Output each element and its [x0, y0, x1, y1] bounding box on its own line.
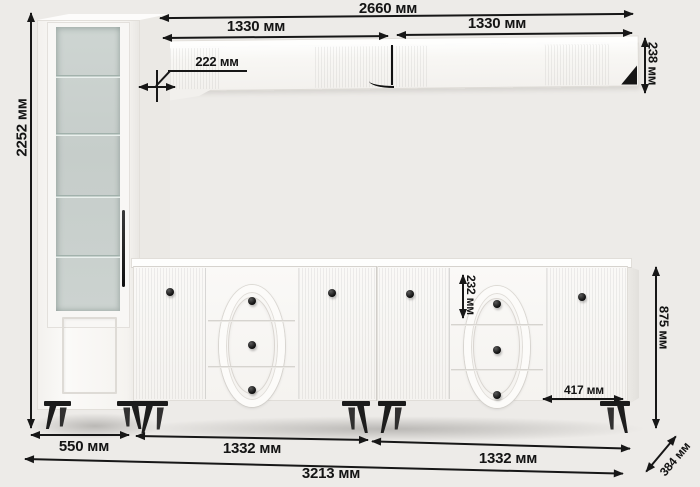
sideboard2-left-door — [379, 268, 450, 399]
cabinet-leg-front — [43, 405, 58, 429]
sideboard-side-panel — [627, 266, 639, 405]
cabinet-leg — [44, 401, 74, 431]
glass-shelf — [56, 195, 120, 198]
dim-label-shelf-height: 238 мм — [647, 29, 660, 99]
dim-label-shelf-right: 1330 мм — [452, 16, 542, 31]
glass-shelf — [56, 133, 120, 136]
sideboard1-right-door — [298, 268, 376, 399]
drawer-separator — [451, 369, 543, 371]
dim-label-drawer-bay-width: 417 мм — [544, 384, 624, 396]
dim-label-shelf-depth: 222 мм — [177, 55, 257, 68]
drawer-knob — [493, 300, 501, 308]
dim-label-cabinet-width: 550 мм — [39, 439, 129, 454]
cabinet-leg-back — [57, 407, 68, 426]
sideboard-seam — [376, 266, 378, 401]
drawer-knob — [248, 297, 256, 305]
sideboard-leg — [598, 401, 632, 435]
door-knob — [328, 289, 336, 297]
drawer-knob — [248, 386, 256, 394]
sideboard-leg — [378, 401, 410, 435]
glass-shelf — [56, 75, 120, 78]
cabinet-door-handle — [122, 210, 125, 287]
drawer-separator — [208, 366, 295, 368]
door-knob — [166, 288, 174, 296]
glass-shelf — [56, 255, 120, 258]
sideboard-leg — [340, 401, 372, 435]
door-knob — [578, 293, 586, 301]
door-knob — [406, 290, 414, 298]
wall-shelf-fluting-right — [545, 44, 610, 86]
dim-line-drawer-bay-width — [543, 398, 623, 400]
dim-label-sideboard-left-width: 1332 мм — [207, 441, 297, 456]
dim-label-sideboard-right-width: 1332 мм — [463, 451, 553, 466]
dim-label-shelf-total: 2660 мм — [343, 1, 433, 16]
drawer-knob — [493, 346, 501, 354]
dim-label-total-width: 3213 мм — [286, 466, 376, 481]
dim-label-sideboard-height: 875 мм — [658, 293, 671, 363]
glass-door-glass — [56, 27, 120, 311]
dim-arrow-shelf-depth — [139, 86, 175, 88]
dim-line-cabinet-width — [31, 434, 129, 436]
sideboard-leg — [140, 401, 172, 435]
drawer-knob — [248, 341, 256, 349]
drawer-knob — [493, 391, 501, 399]
dim-line-cabinet-height — [30, 13, 32, 428]
sideboard2-right-door — [546, 268, 628, 399]
dim-leader-shelf-depth — [168, 70, 247, 72]
furniture-dimension-diagram: 2660 мм 1330 мм 1330 мм 222 мм 238 мм 22… — [0, 0, 700, 487]
cabinet-bottom-panel-inset — [62, 317, 117, 394]
sideboard-row — [131, 258, 640, 436]
dim-label-shelf-left: 1330 мм — [211, 19, 301, 34]
dim-label-cabinet-height: 2252 мм — [15, 88, 30, 168]
dim-label-top-drawer-height: 232 мм — [465, 265, 477, 325]
sideboard1-drawer-bay — [208, 268, 295, 399]
drawer-separator — [208, 320, 295, 322]
